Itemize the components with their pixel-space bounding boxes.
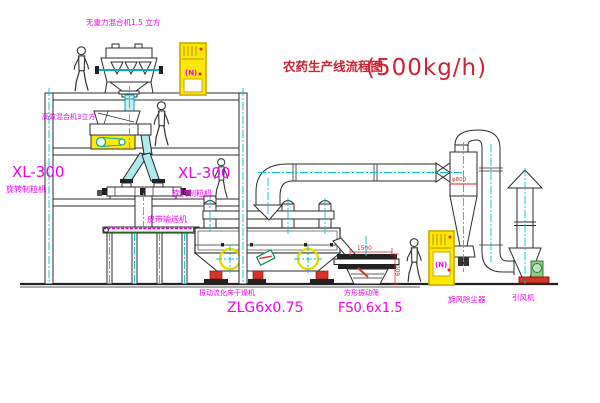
cyclone-diameter-dim: φ800 [452,177,467,183]
page-title-capacity: (500kg/h) [366,55,487,81]
label-high-efficiency-mixer: 高效混合机3立方 [42,112,95,121]
induced-draft-fan [509,248,549,283]
high-efficiency-mixer [90,99,152,154]
label-fan: 引风机 [512,292,535,302]
cabinet-right-text: (N) [435,261,447,269]
conveyor-platform [107,233,187,284]
label-granulator-right-name: 旋转制粒机 [172,188,212,198]
dim-screen-length: 1500 [357,246,372,252]
worker-figure-1 [74,47,88,91]
label-dryer-name: 振动流化床干燥机 [199,288,255,297]
cabinet-top-text: (N) [185,69,197,77]
fan-base [519,277,549,283]
diagram-canvas: (N) [0,0,600,403]
label-granulator-left-model: XL-300 [12,163,64,181]
worker-figure-4 [407,239,421,282]
label-granulator-left-name: 旋转制粒机 [6,184,46,194]
label-dryer-model: ZLG6x0.75 [227,300,304,316]
gravity-free-mixer [95,44,163,97]
control-cabinet-top: (N) [180,43,206,95]
label-screen-model: FS0.6x1.5 [338,301,403,316]
label-granulator-right-model: XL-300 [178,164,230,182]
y-splitter-chute [123,153,159,181]
label-screen-name: 方形振动筛 [344,288,379,297]
belt-conveyor [103,227,199,233]
worker-figure-2 [154,102,168,146]
exhaust-stack [508,170,542,248]
process-flow-diagram: (N) [0,0,600,403]
label-gravity-mixer: 无重力混合机1.5 立方 [86,17,161,27]
dim-screen-height: 600 [396,265,402,276]
control-cabinet-right: (N) [429,231,454,285]
label-cyclone: 旋风除尘器 [448,294,486,304]
label-belt-conveyor: 皮带输送机 [147,214,187,224]
ground-line [20,284,558,287]
vibrating-screen [334,254,399,284]
